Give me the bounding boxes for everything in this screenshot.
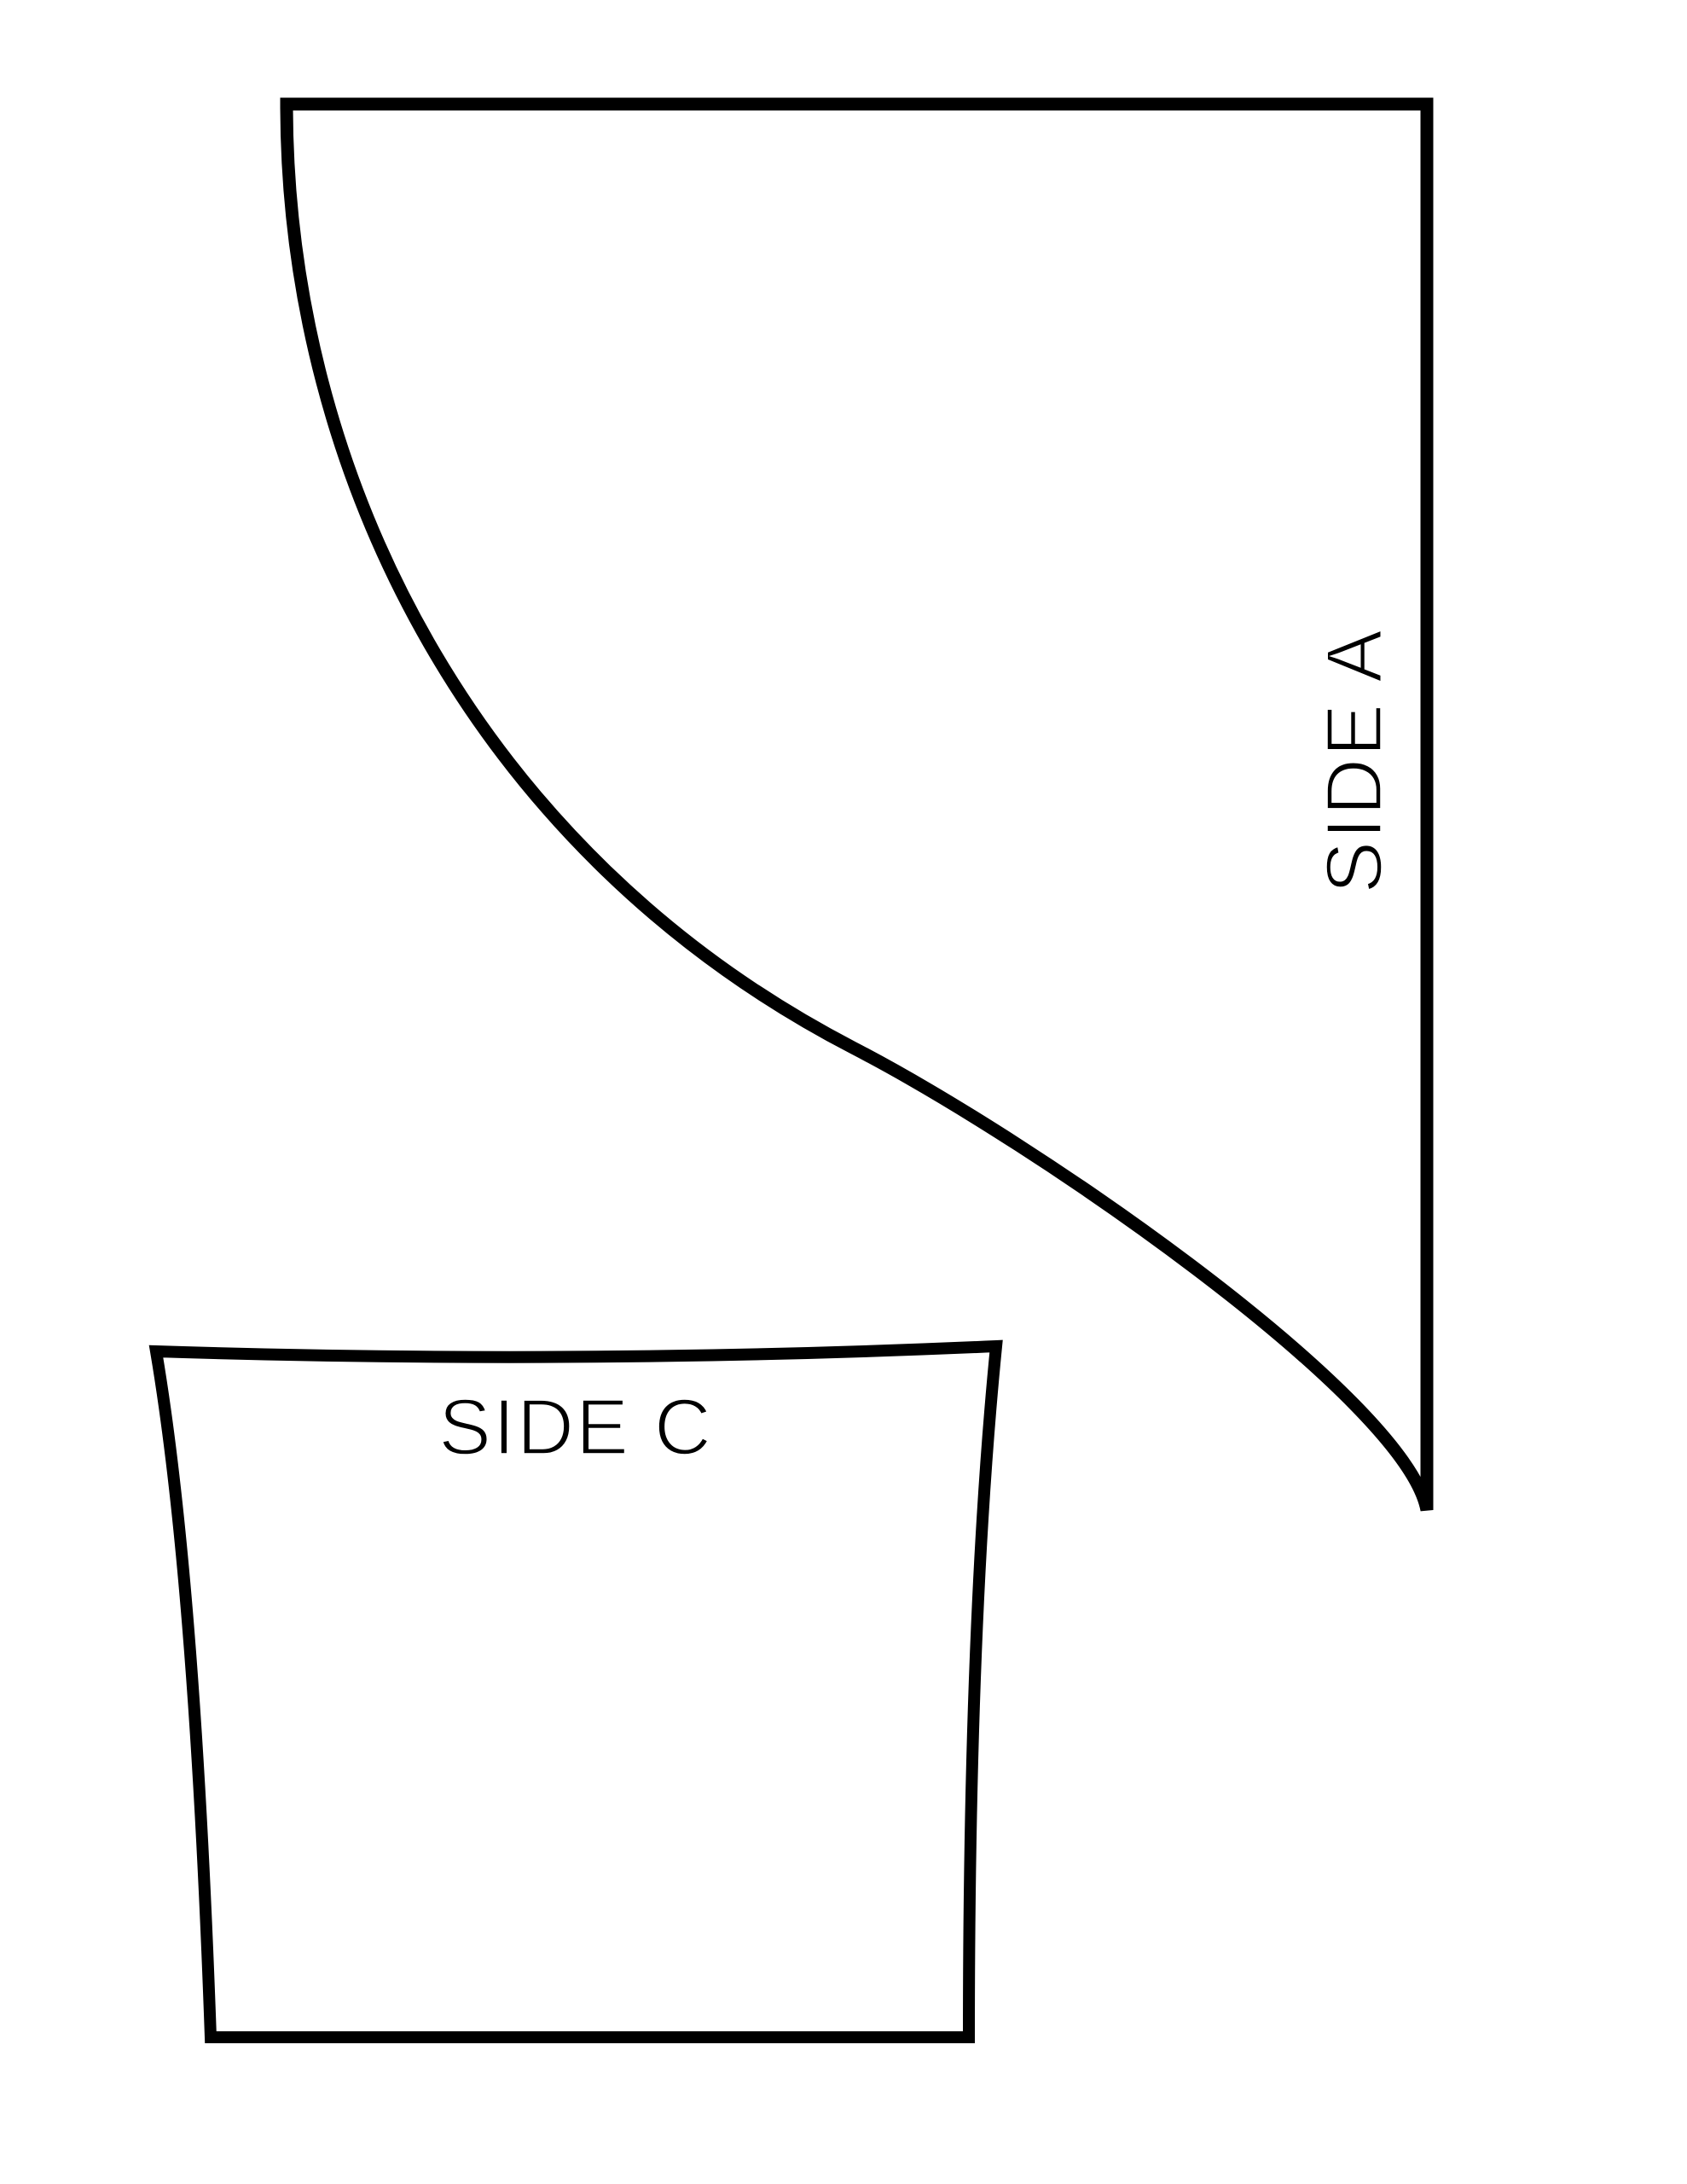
pattern-canvas	[0, 0, 1687, 2184]
side-c-label: SIDE C	[438, 1388, 713, 1467]
side-a-outline	[287, 104, 1427, 1510]
side-a-label: SIDE A	[1315, 628, 1394, 894]
pattern-sheet-page: SIDE A SIDE C	[0, 0, 1687, 2184]
